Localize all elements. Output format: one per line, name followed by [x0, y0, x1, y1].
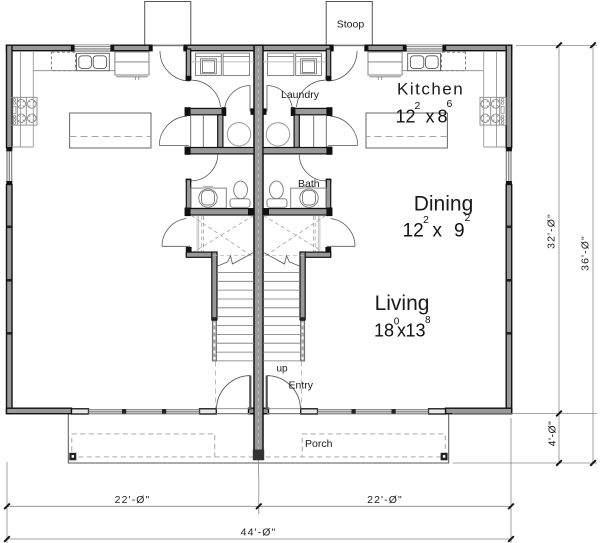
svg-text:Living: Living	[375, 292, 430, 315]
svg-text:2: 2	[415, 100, 421, 112]
svg-text:Stoop: Stoop	[337, 19, 365, 31]
svg-text:22'-Ø": 22'-Ø"	[115, 494, 151, 506]
svg-text:9: 9	[454, 221, 465, 242]
svg-text:x: x	[433, 221, 443, 242]
svg-text:36'-Ø": 36'-Ø"	[580, 235, 592, 271]
svg-text:18: 18	[374, 321, 394, 341]
svg-text:Porch: Porch	[305, 438, 333, 450]
svg-text:32'-Ø": 32'-Ø"	[546, 213, 558, 249]
svg-text:2: 2	[423, 214, 429, 226]
svg-text:Bath: Bath	[298, 178, 320, 190]
svg-text:12: 12	[396, 107, 416, 127]
svg-text:13: 13	[406, 321, 426, 341]
svg-text:4'-Ø": 4'-Ø"	[547, 421, 559, 447]
svg-text:Entry: Entry	[289, 380, 314, 392]
svg-text:22'-Ø": 22'-Ø"	[367, 494, 403, 506]
svg-text:up: up	[277, 364, 289, 375]
svg-text:8: 8	[425, 315, 431, 326]
svg-text:12: 12	[403, 221, 424, 242]
svg-text:Laundry: Laundry	[281, 89, 320, 101]
svg-text:Kitchen: Kitchen	[397, 80, 464, 99]
svg-text:2: 2	[465, 212, 471, 224]
svg-text:44'-Ø": 44'-Ø"	[241, 527, 277, 539]
svg-text:6: 6	[447, 98, 453, 110]
svg-text:x: x	[426, 107, 435, 127]
